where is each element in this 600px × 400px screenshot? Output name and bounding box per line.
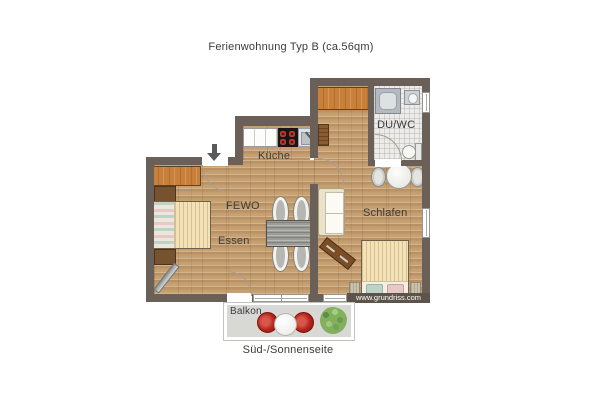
window-divider — [281, 295, 282, 301]
wall-top-right — [310, 78, 430, 86]
living-wardrobe — [151, 166, 201, 186]
balcony-table — [274, 313, 297, 336]
window-bedroom — [422, 208, 430, 238]
floorplan-canvas: Ferienwohnung Typ B (ca.56qm) — [0, 0, 600, 400]
wall-divider-lower — [310, 184, 318, 294]
wall-left — [146, 157, 154, 302]
shower — [375, 88, 401, 114]
bed-pillows — [153, 202, 175, 248]
window-bathroom — [422, 92, 430, 113]
toilet-tank — [415, 143, 422, 161]
window-south-large — [253, 294, 309, 302]
side-chair — [371, 167, 386, 187]
bedroom-bed — [361, 240, 409, 296]
wall-right — [422, 86, 430, 302]
watermark-text: www.grundriss.com — [356, 293, 421, 302]
bedroom-dresser — [318, 124, 329, 146]
sofa-cushions — [325, 192, 344, 234]
toilet-bowl — [402, 145, 416, 159]
bedroom-wardrobe — [316, 87, 372, 110]
wall-kitchen-top — [235, 116, 318, 126]
living-label: FEWO — [226, 200, 260, 212]
kitchen-label: Küche — [258, 150, 290, 162]
cooktop — [278, 128, 298, 147]
living-bed — [152, 201, 211, 249]
entrance-arrow-icon — [207, 144, 222, 161]
toilet — [402, 143, 422, 161]
bed-duvet — [362, 241, 408, 282]
orientation-label: Süd-/Sonnenseite — [213, 344, 363, 356]
watermark: www.grundriss.com — [347, 293, 430, 303]
balcony-label: Balkon — [230, 306, 262, 317]
bedroom-label: Schlafen — [363, 207, 407, 219]
dining-label: Essen — [218, 235, 250, 247]
wall-bathroom-left — [368, 86, 374, 166]
sofa — [318, 188, 345, 236]
dining-table — [266, 220, 316, 247]
sink-bowl — [408, 93, 418, 104]
wall-top-left — [146, 157, 243, 165]
bathroom-label: DU/WC — [377, 119, 415, 131]
shower-tray — [379, 92, 397, 110]
balcony: Balkon — [223, 302, 355, 341]
window-south-small — [323, 294, 347, 302]
wall-divider-upper — [310, 86, 318, 158]
bathroom-sink — [404, 90, 420, 105]
kitchen-cabinets — [243, 128, 278, 147]
living-nightstand-top — [154, 186, 176, 202]
bed-duvet — [175, 202, 210, 248]
plan-title: Ferienwohnung Typ B (ca.56qm) — [141, 41, 441, 53]
